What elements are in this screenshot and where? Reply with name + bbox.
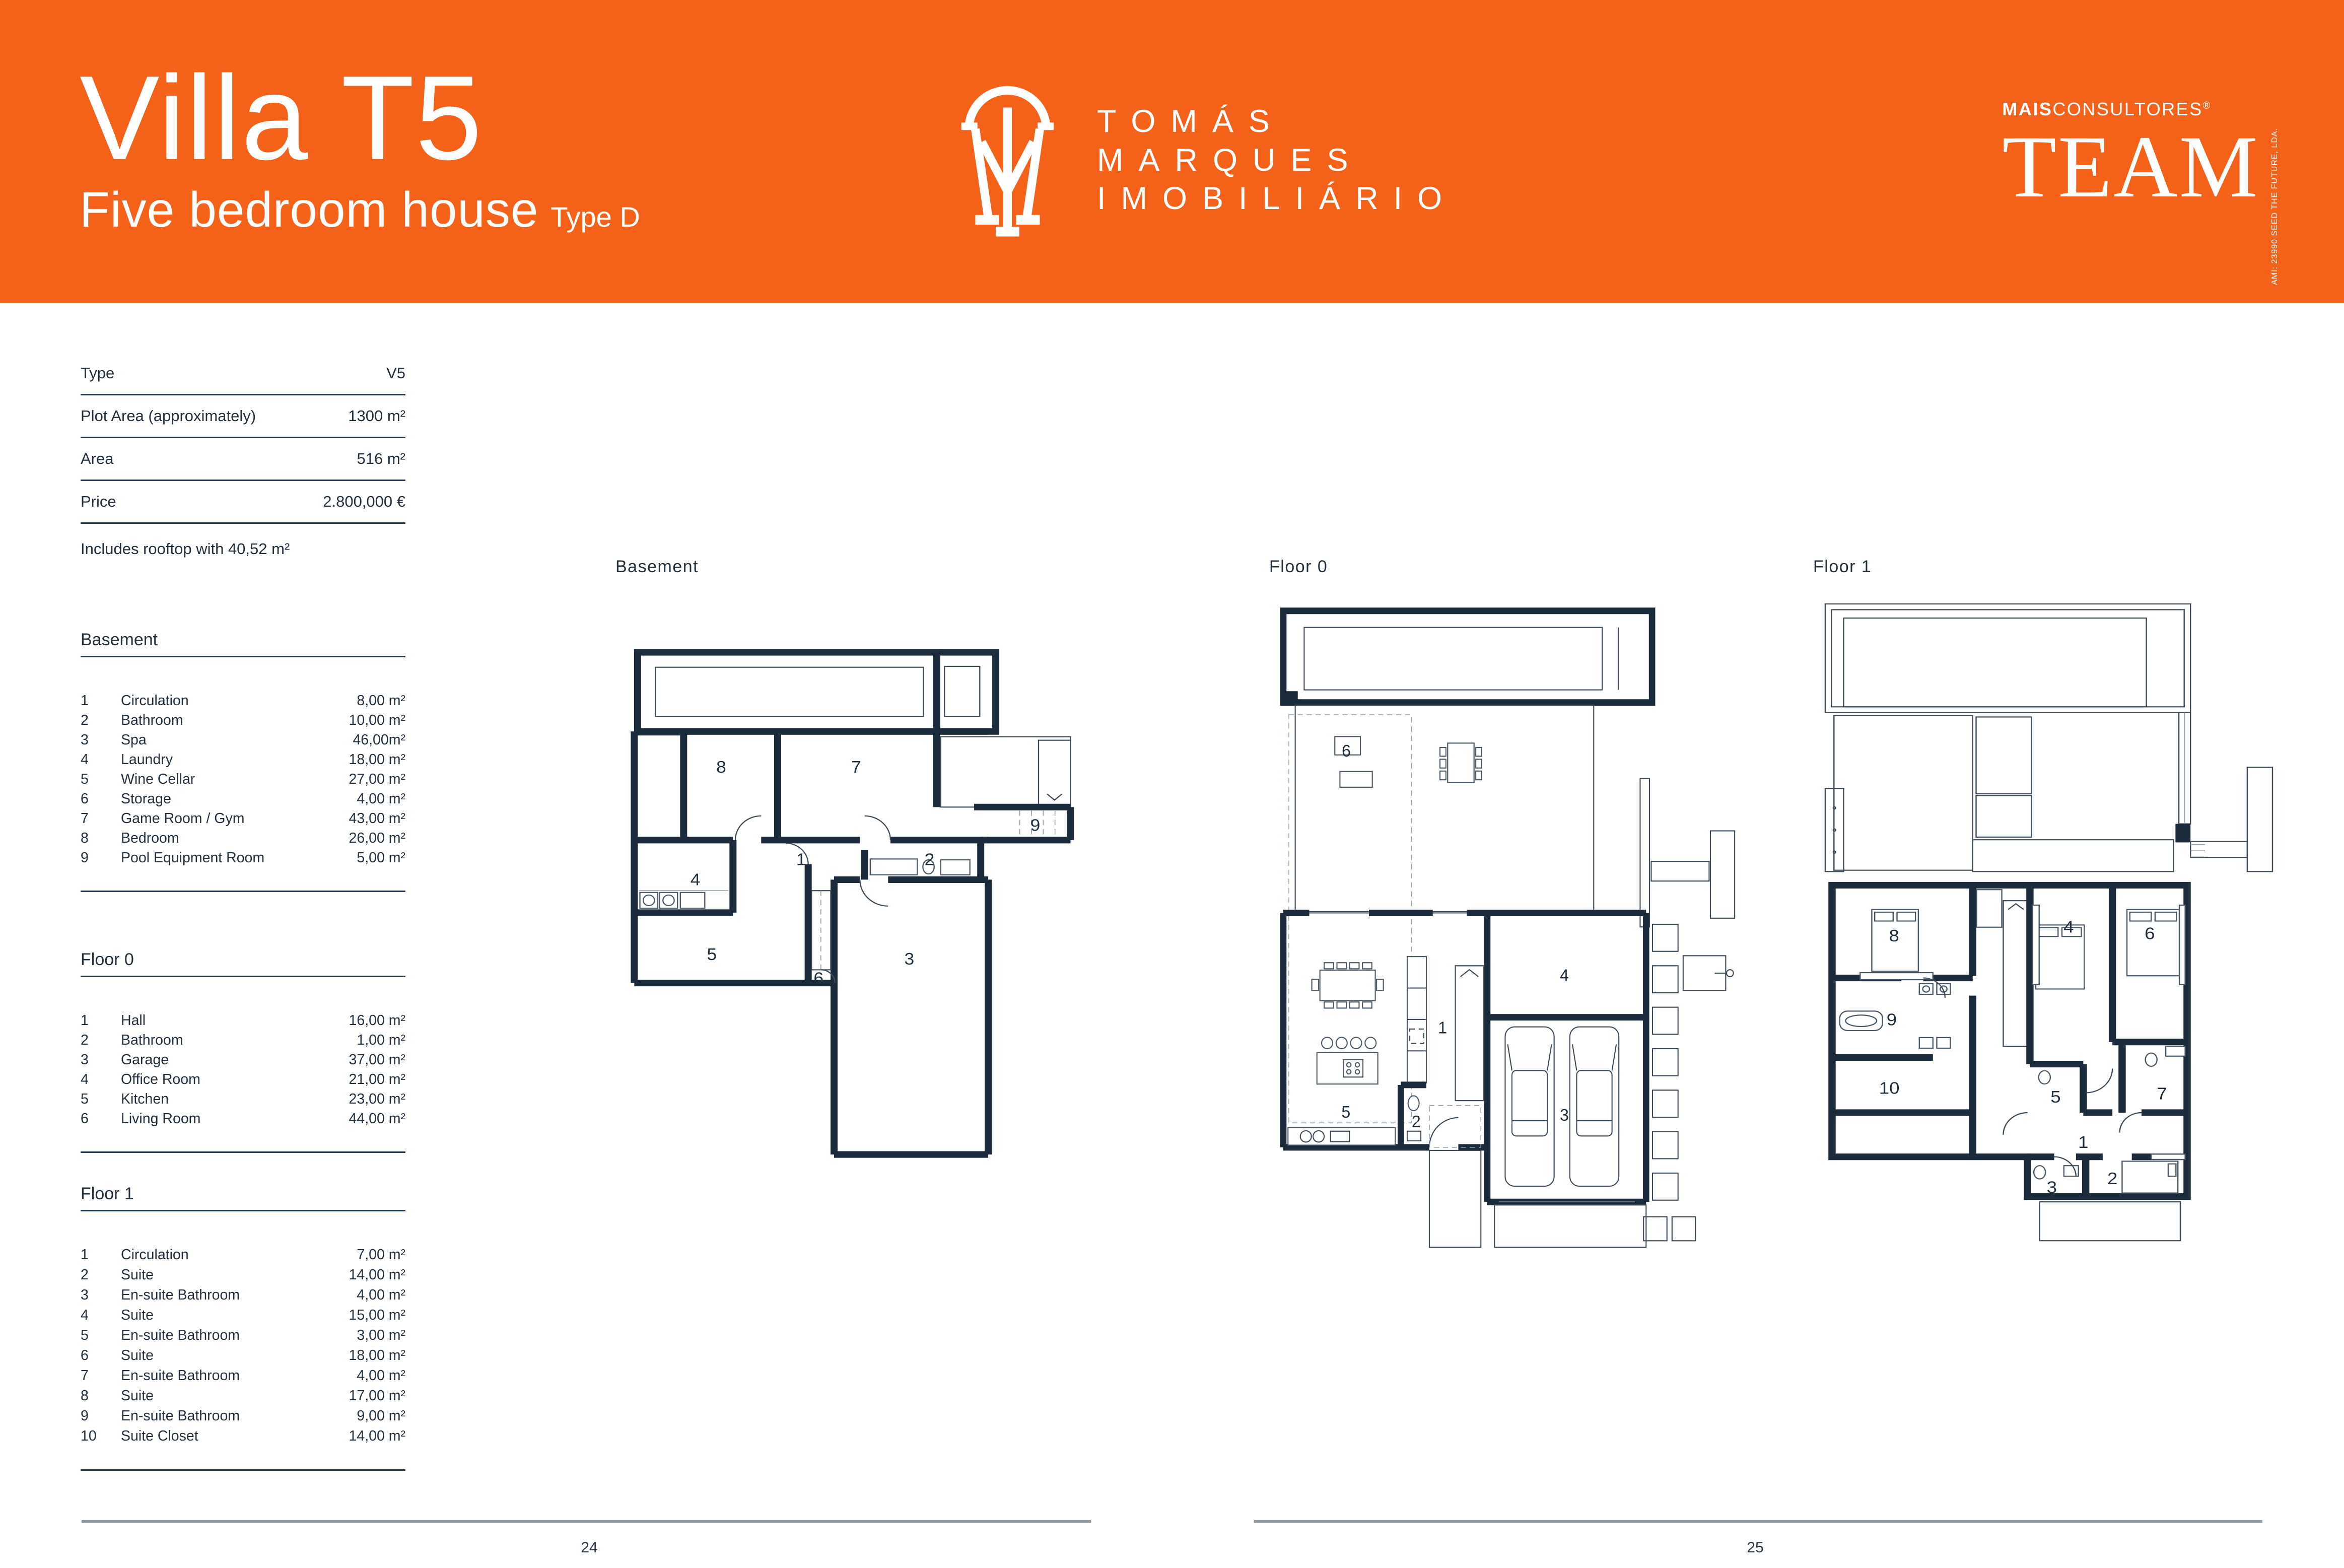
plan-title-floor1: Floor 1 — [1813, 557, 1872, 577]
room-label: 7 — [851, 758, 861, 777]
brand-logo: TOMÁS MARQUES IMOBILIÁRIO — [953, 80, 1457, 241]
team-bold: MAIS — [2002, 99, 2052, 119]
room-label: 3 — [1560, 1106, 1569, 1124]
spec-table: Type V5 Plot Area (approximately) 1300 m… — [81, 353, 405, 524]
room-list-floor1: Floor 1 1Circulation7,00 m² 2Suite14,00 … — [81, 1184, 405, 1471]
brand-line-3: IMOBILIÁRIO — [1097, 179, 1457, 218]
room-row: 5Kitchen23,00 m² — [81, 1091, 405, 1111]
team-rest: CONSULTORES — [2052, 99, 2202, 119]
spec-label: Type — [81, 364, 114, 382]
room-label: 6 — [813, 969, 823, 988]
room-row: 6Living Room44,00 m² — [81, 1111, 405, 1130]
brand-wordmark: TOMÁS MARQUES IMOBILIÁRIO — [1097, 102, 1457, 219]
room-row: 1Hall16,00 m² — [81, 1012, 405, 1032]
room-label: 4 — [1560, 966, 1569, 984]
spec-value: V5 — [386, 364, 405, 382]
room-label: 5 — [1341, 1103, 1350, 1121]
room-row: 4Office Room21,00 m² — [81, 1071, 405, 1091]
room-row: 3Garage37,00 m² — [81, 1052, 405, 1071]
spec-label: Plot Area (approximately) — [81, 407, 256, 425]
room-label: 5 — [707, 945, 717, 964]
registered-mark: ® — [2203, 100, 2212, 111]
rooftop-note: Includes rooftop with 40,52 m² — [81, 540, 290, 558]
room-row: 4Suite15,00 m² — [81, 1307, 405, 1327]
plan-title-floor0: Floor 0 — [1269, 557, 1328, 577]
room-label: 8 — [716, 758, 726, 777]
rule — [81, 1469, 405, 1471]
list-title: Basement — [81, 630, 405, 650]
room-label: 3 — [2047, 1178, 2057, 1197]
room-row: 2Bathroom10,00 m² — [81, 712, 405, 732]
list-title: Floor 0 — [81, 949, 405, 970]
room-row: 7Game Room / Gym43,00 m² — [81, 810, 405, 830]
team-wordmark: TEAM — [2002, 125, 2259, 209]
page-number-left: 24 — [579, 1539, 599, 1556]
room-label: 5 — [2050, 1087, 2060, 1106]
team-ami-text: AMI: 23990 SEED THE FUTURE, LDA. — [2270, 128, 2280, 285]
room-label: 10 — [1879, 1079, 1900, 1098]
brochure-page: Villa T5 Five bedroom house Type D — [0, 0, 2344, 1568]
room-row: 6Storage4,00 m² — [81, 791, 405, 810]
room-label: 1 — [2078, 1133, 2088, 1152]
floorplan-floor0: 6 4 1 5 2 3 — [1267, 597, 1735, 1252]
brand-line-2: MARQUES — [1097, 141, 1457, 180]
rule — [81, 976, 405, 977]
plan-title-basement: Basement — [615, 557, 699, 577]
list-title: Floor 1 — [81, 1184, 405, 1204]
rule — [81, 891, 405, 892]
room-row: 1Circulation7,00 m² — [81, 1247, 405, 1267]
room-label: 3 — [904, 950, 914, 969]
rule — [81, 1210, 405, 1211]
team-logo: MAISCONSULTORES® TEAM AMI: 23990 SEED TH… — [2002, 99, 2259, 209]
spec-row-price: Price 2.800,000 € — [81, 481, 405, 524]
spec-label: Area — [81, 450, 113, 468]
title-block: Villa T5 Five bedroom house Type D — [80, 58, 640, 238]
room-row: 5En-suite Bathroom3,00 m² — [81, 1327, 405, 1347]
brand-line-1: TOMÁS — [1097, 102, 1457, 141]
room-label: 9 — [1030, 816, 1041, 835]
floorplan-basement: 8 7 9 1 2 4 5 6 3 — [615, 600, 1109, 1172]
floorplan-floor1: 8 4 6 9 5 7 10 1 2 3 — [1812, 600, 2272, 1245]
rule — [81, 1151, 405, 1153]
room-row: 3En-suite Bathroom4,00 m² — [81, 1287, 405, 1307]
spec-value: 1300 m² — [348, 407, 405, 425]
tm-monogram-icon — [953, 80, 1062, 241]
room-label: 6 — [1342, 742, 1351, 760]
room-label: 4 — [691, 871, 701, 890]
room-row: 3Spa46,00m² — [81, 732, 405, 752]
room-list-floor0: Floor 0 1Hall16,00 m² 2Bathroom1,00 m² 3… — [81, 949, 405, 1153]
rule — [81, 656, 405, 657]
room-label: 7 — [2157, 1084, 2167, 1103]
footer-rule-left — [82, 1520, 1091, 1523]
spec-value: 516 m² — [357, 450, 405, 468]
subtitle-text: Five bedroom house — [80, 181, 538, 238]
room-label: 2 — [1412, 1113, 1421, 1131]
room-label: 2 — [925, 851, 935, 869]
room-label: 4 — [2063, 918, 2074, 936]
page-subtitle: Five bedroom house Type D — [80, 181, 640, 238]
page-number-right: 25 — [1745, 1539, 1765, 1556]
header-band: Villa T5 Five bedroom house Type D — [0, 0, 2344, 303]
room-row: 2Bathroom1,00 m² — [81, 1032, 405, 1052]
spec-label: Price — [81, 493, 116, 511]
footer-rule-right — [1254, 1520, 2262, 1523]
room-row: 9En-suite Bathroom9,00 m² — [81, 1408, 405, 1428]
spec-value: 2.800,000 € — [323, 493, 405, 511]
team-consultores-wordmark: MAISCONSULTORES® — [2002, 99, 2259, 120]
room-row: 9Pool Equipment Room5,00 m² — [81, 850, 405, 869]
room-row: 1Circulation8,00 m² — [81, 693, 405, 712]
room-row: 10Suite Closet14,00 m² — [81, 1428, 405, 1448]
spec-row-type: Type V5 — [81, 353, 405, 395]
spec-row-area: Area 516 m² — [81, 438, 405, 481]
room-row: 6Suite18,00 m² — [81, 1347, 405, 1368]
room-label: 8 — [1889, 926, 1899, 945]
page-title: Villa T5 — [80, 58, 640, 178]
room-row: 8Bedroom26,00 m² — [81, 830, 405, 850]
room-row: 4Laundry18,00 m² — [81, 752, 405, 771]
room-label: 9 — [1887, 1010, 1897, 1029]
room-row: 8Suite17,00 m² — [81, 1388, 405, 1408]
type-label: Type D — [550, 200, 640, 233]
room-list-basement: Basement 1Circulation8,00 m² 2Bathroom10… — [81, 630, 405, 892]
room-label: 2 — [2107, 1170, 2117, 1188]
spec-row-plot-area: Plot Area (approximately) 1300 m² — [81, 395, 405, 438]
room-label: 1 — [1438, 1018, 1447, 1037]
room-row: 2Suite14,00 m² — [81, 1267, 405, 1287]
room-label: 6 — [2145, 924, 2155, 943]
room-row: 7En-suite Bathroom4,00 m² — [81, 1368, 405, 1388]
room-row: 5Wine Cellar27,00 m² — [81, 771, 405, 791]
room-label: 1 — [796, 851, 806, 869]
